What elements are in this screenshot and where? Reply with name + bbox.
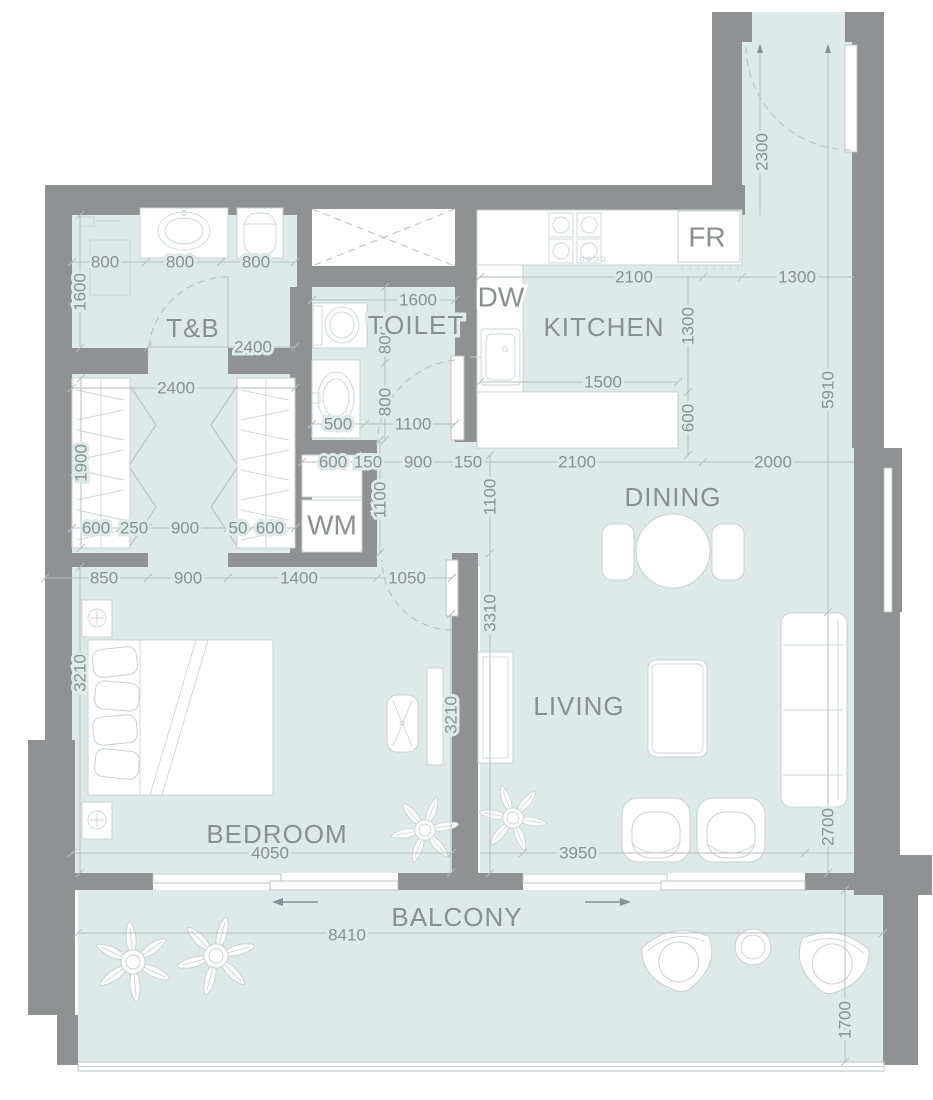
dim-label: 2300 (753, 133, 772, 171)
dim-label: 900 (174, 569, 202, 588)
appliance-label-dw: DW (478, 282, 525, 313)
dim-label: 2000 (754, 453, 792, 472)
dim-label: 850 (90, 569, 118, 588)
dim-label: 600 (679, 404, 698, 432)
room-label-tnb: T&B (166, 313, 220, 343)
dim-label: 1050 (388, 569, 426, 588)
shaft (312, 209, 455, 266)
room-label-balcony: BALCONY (391, 902, 522, 932)
entry-door-leaf (845, 45, 857, 152)
armchair (697, 798, 765, 862)
dining-table (636, 514, 710, 588)
floor-plan-page: 800 800 800 1600 2400 2400 1900 600 250 … (0, 0, 933, 1100)
window-slot (884, 468, 892, 612)
appliance-label-fr: FR (688, 222, 725, 253)
dim-label: 1600 (71, 273, 90, 311)
dim-label: 1400 (280, 569, 318, 588)
toilet-door-leaf (451, 356, 464, 440)
dim-label: 2100 (558, 453, 596, 472)
bedroom-door-leaf (446, 560, 458, 616)
dining-furniture (602, 514, 744, 588)
dim-label: 900 (171, 519, 199, 538)
dim-label: 50 (229, 519, 248, 538)
dim-label: 1100 (371, 482, 390, 519)
room-label-bedroom: BEDROOM (206, 819, 347, 849)
dim-label: 1100 (481, 479, 500, 516)
dim-label: 600 (319, 453, 347, 472)
dim-label: 1900 (72, 444, 91, 482)
armchair (622, 798, 690, 862)
side-table (735, 929, 771, 965)
dim-label: 500 (324, 415, 352, 434)
dim-label: 600 (82, 519, 110, 538)
dim-label: 2400 (157, 379, 195, 398)
nightstand (82, 600, 112, 637)
dim-label: 1500 (584, 373, 622, 392)
room-label-living: LIVING (533, 691, 624, 721)
dim-label: 2400 (234, 338, 272, 357)
dim-label: 800 (242, 253, 270, 272)
dim-label: 250 (120, 519, 148, 538)
dim-label: 1600 (399, 291, 437, 310)
dim-label: 3950 (559, 844, 597, 863)
kitchen-island (477, 392, 678, 448)
dim-label: 3310 (481, 594, 500, 632)
room-label-kitchen: KITCHEN (543, 312, 664, 342)
dim-label: 8410 (328, 926, 366, 945)
appliance-label-wm: WM (307, 510, 357, 541)
dim-label: 3210 (442, 696, 461, 734)
sliding-door-bedroom (153, 874, 398, 890)
dim-label: 800 (91, 253, 119, 272)
coffee-table (648, 660, 707, 757)
dim-label: 800 (376, 388, 395, 416)
dim-label: 1100 (395, 415, 432, 434)
room-label-dining: DINING (625, 482, 722, 512)
dim-label: 150 (454, 453, 482, 472)
tv-icon (387, 695, 418, 752)
dim-label: 2100 (615, 268, 653, 287)
floor-plan-canvas: 800 800 800 1600 2400 2400 1900 600 250 … (0, 0, 933, 1100)
dining-chair-right (712, 524, 744, 580)
dim-label: 150 (354, 453, 382, 472)
dim-label: 3210 (71, 654, 90, 692)
dim-label: 1300 (679, 307, 698, 345)
dim-label: 2700 (819, 808, 838, 846)
dim-label: 800 (166, 253, 194, 272)
dim-label: 1300 (778, 268, 816, 287)
dim-label: 600 (256, 519, 284, 538)
room-label-toilet: TOILET (368, 310, 465, 340)
dining-chair-left (602, 524, 634, 580)
sliding-door-living (523, 874, 805, 890)
dim-label: 1700 (836, 1001, 855, 1039)
nightstand (82, 802, 112, 839)
dim-label: 5910 (819, 371, 838, 409)
dim-label: 900 (404, 453, 432, 472)
